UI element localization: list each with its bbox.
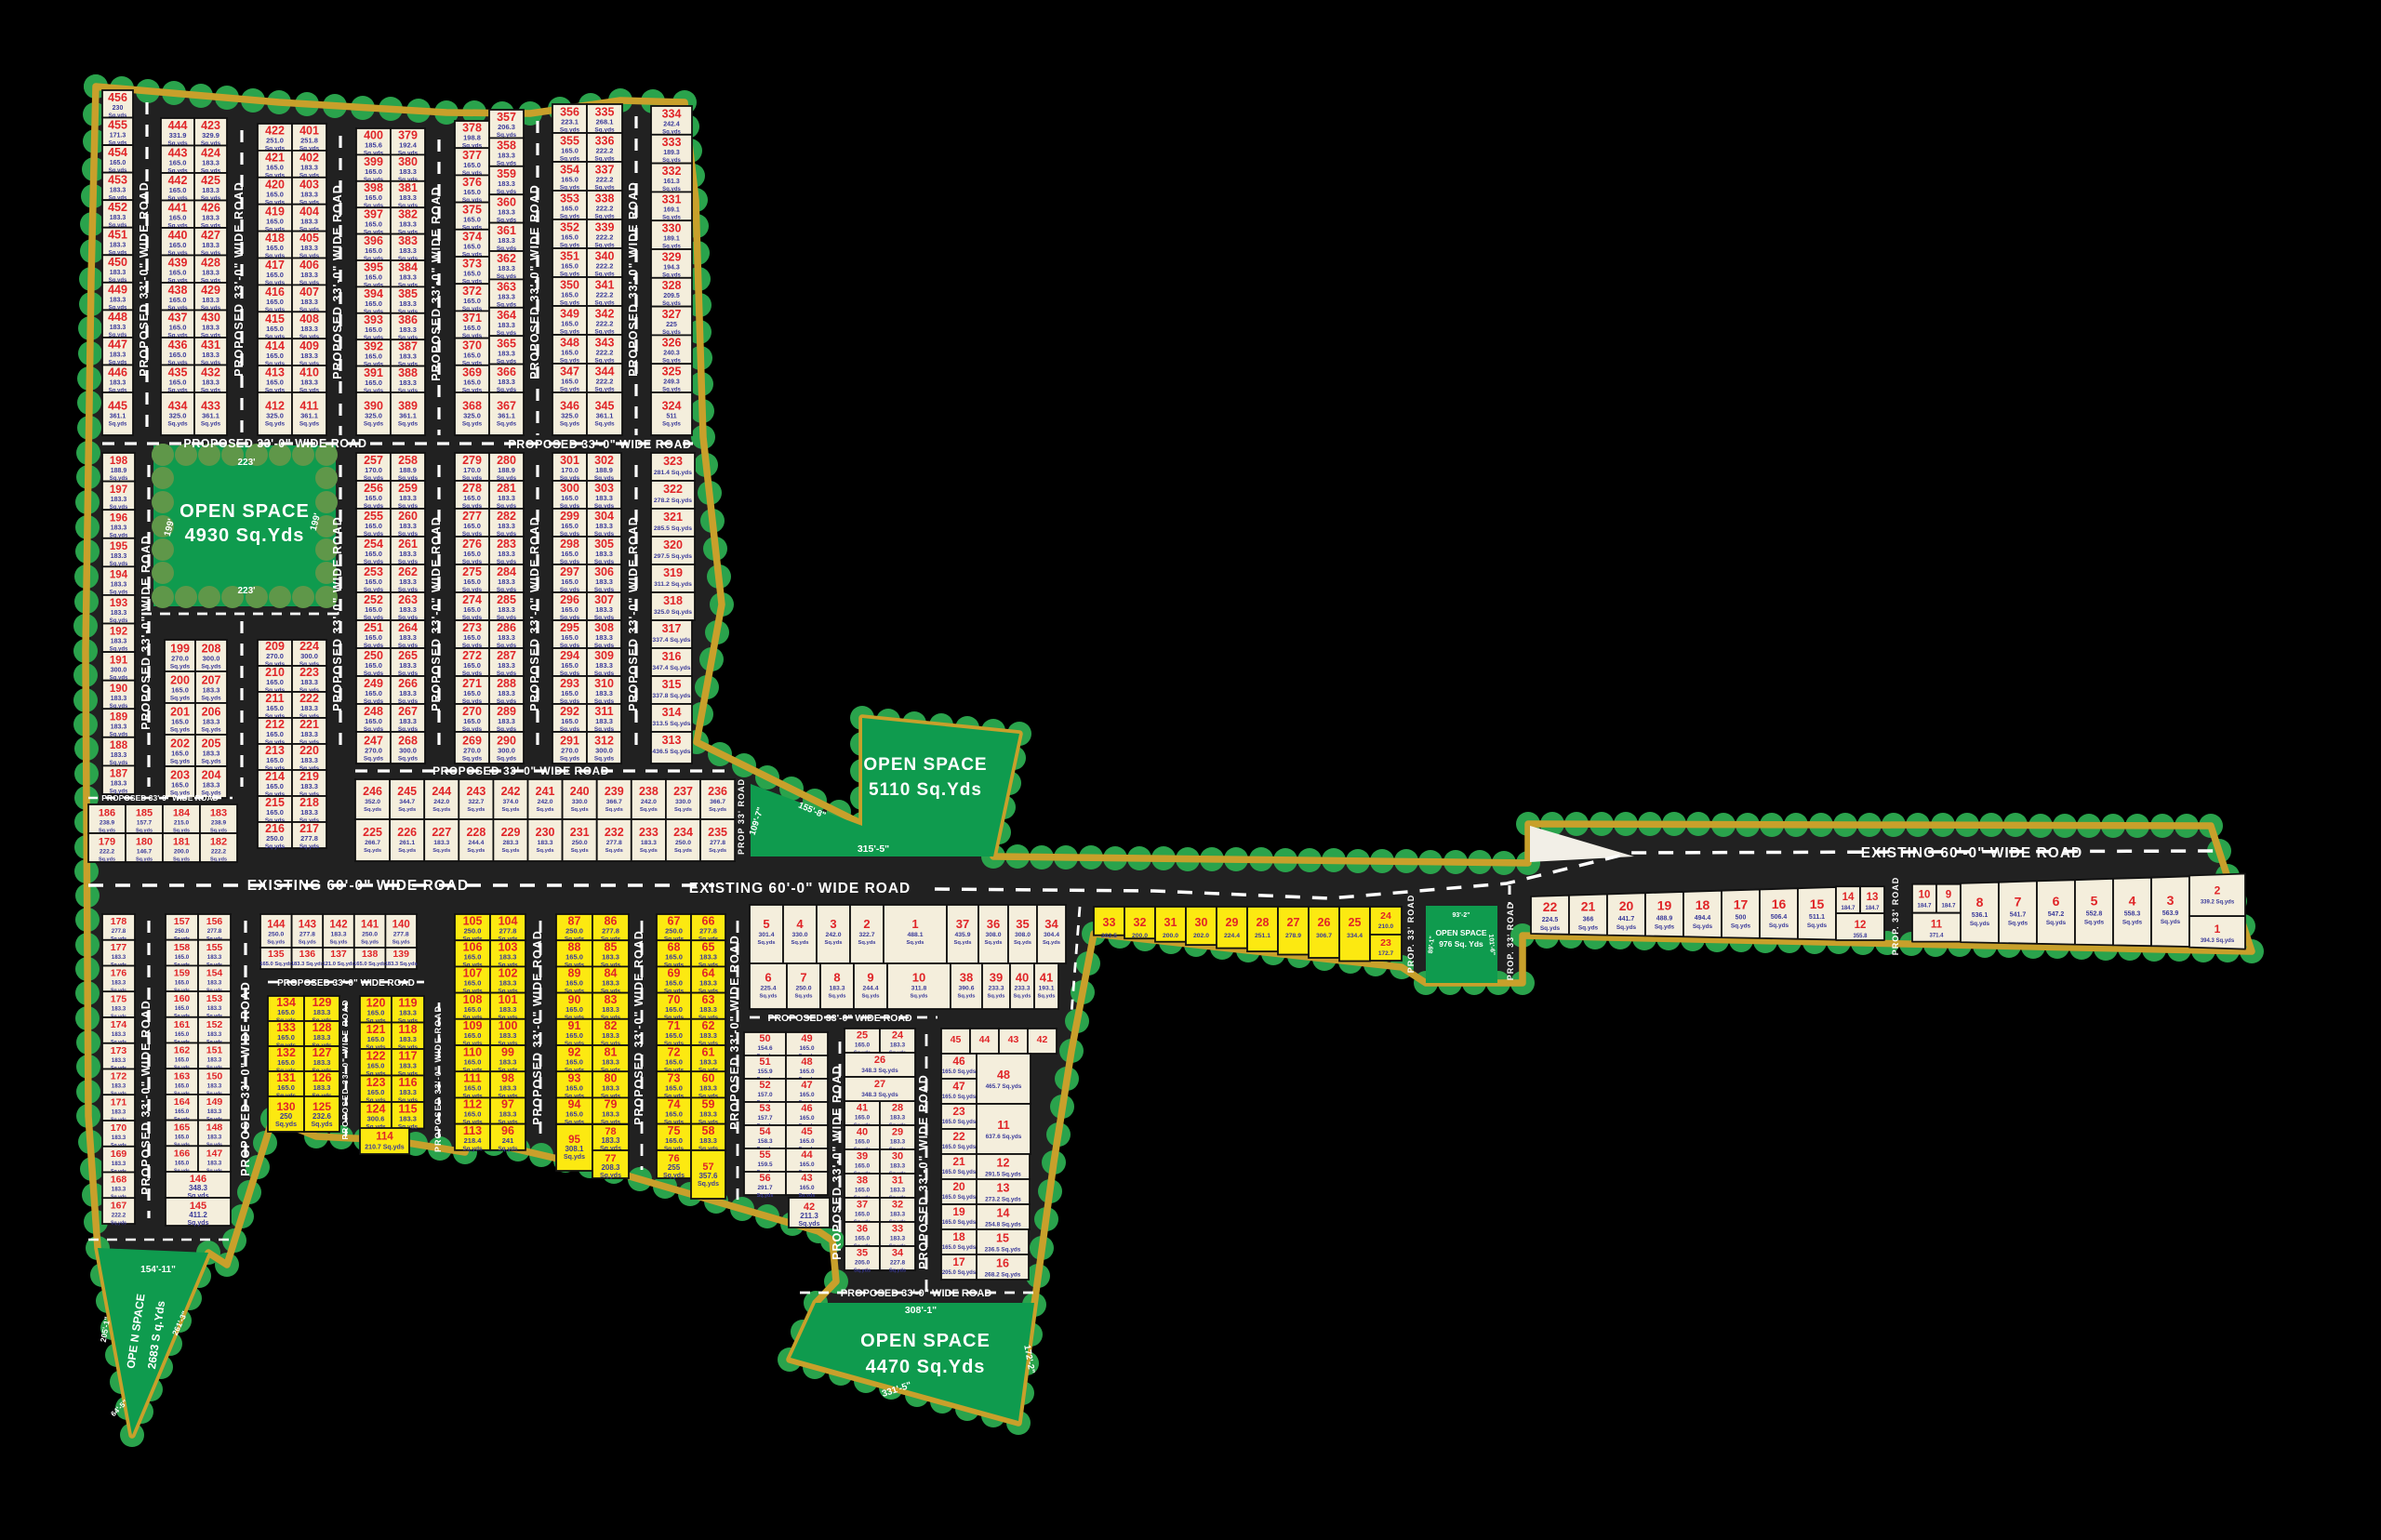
svg-text:322.7: 322.7	[468, 799, 484, 805]
svg-text:37: 37	[956, 917, 969, 931]
svg-text:300: 300	[560, 482, 579, 495]
svg-text:85: 85	[605, 941, 618, 954]
svg-text:434: 434	[168, 399, 188, 412]
svg-text:21: 21	[952, 1155, 965, 1168]
svg-text:183.3: 183.3	[202, 213, 219, 221]
svg-text:101: 101	[499, 993, 518, 1006]
svg-text:200.0: 200.0	[174, 848, 190, 855]
svg-text:OPEN SPACE: OPEN SPACE	[1435, 928, 1486, 937]
svg-text:339.2 Sq.yds: 339.2 Sq.yds	[2201, 900, 2235, 906]
svg-text:74: 74	[668, 1098, 681, 1111]
svg-text:33: 33	[892, 1223, 903, 1234]
svg-text:177: 177	[111, 942, 127, 953]
svg-text:Sq.yds: Sq.yds	[462, 1146, 483, 1152]
svg-text:406: 406	[299, 259, 319, 272]
svg-text:456: 456	[108, 91, 127, 104]
svg-text:88: 88	[568, 941, 581, 954]
svg-text:183.3: 183.3	[399, 661, 417, 670]
svg-text:97: 97	[501, 1098, 514, 1111]
svg-text:165.0: 165.0	[365, 246, 382, 255]
svg-text:165.0: 165.0	[175, 1082, 190, 1089]
svg-text:110: 110	[463, 1045, 482, 1058]
svg-text:265: 265	[398, 649, 418, 662]
svg-text:147: 147	[206, 1148, 223, 1159]
svg-text:547.2: 547.2	[2048, 911, 2065, 918]
svg-text:300.0: 300.0	[595, 747, 613, 755]
svg-text:183.3: 183.3	[203, 686, 220, 695]
svg-text:183.3: 183.3	[595, 689, 613, 697]
svg-text:441: 441	[168, 201, 188, 214]
svg-text:308.0: 308.0	[1015, 932, 1031, 938]
svg-text:PROPOSED 33'-0" WIDE ROAD: PROPOSED 33'-0" WIDE ROAD	[627, 516, 640, 711]
svg-text:290: 290	[497, 735, 516, 748]
svg-text:223': 223'	[237, 458, 255, 468]
svg-text:194.3: 194.3	[663, 264, 680, 271]
svg-text:163: 163	[174, 1070, 191, 1082]
svg-text:Sq.yds: Sq.yds	[2122, 919, 2143, 925]
svg-text:161.3: 161.3	[663, 179, 680, 185]
svg-text:198: 198	[110, 456, 128, 467]
svg-text:Sq.yds: Sq.yds	[889, 1268, 906, 1273]
svg-text:150: 150	[206, 1070, 223, 1082]
svg-text:165.0: 165.0	[855, 1235, 871, 1241]
svg-text:344.7: 344.7	[399, 799, 415, 805]
svg-text:127: 127	[313, 1046, 332, 1059]
svg-text:322.7: 322.7	[858, 932, 874, 938]
svg-text:419: 419	[265, 205, 285, 218]
svg-text:317: 317	[662, 622, 682, 635]
svg-text:449: 449	[108, 284, 127, 297]
svg-text:165.0: 165.0	[665, 1031, 683, 1040]
svg-text:266: 266	[398, 677, 418, 690]
svg-text:Sq.yds: Sq.yds	[364, 756, 384, 763]
svg-text:165.0: 165.0	[665, 953, 683, 962]
svg-text:165.0: 165.0	[463, 661, 481, 670]
svg-text:277.8: 277.8	[710, 840, 725, 846]
svg-text:43: 43	[801, 1173, 812, 1184]
svg-text:183.3: 183.3	[498, 494, 515, 502]
svg-text:91: 91	[568, 1019, 581, 1032]
svg-text:380: 380	[398, 155, 418, 168]
svg-text:PROPOSED 33'-0" WIDE ROAD: PROPOSED 33'-0" WIDE ROAD	[531, 930, 544, 1125]
svg-text:311: 311	[594, 705, 613, 718]
svg-text:165.0: 165.0	[169, 378, 187, 386]
svg-text:162: 162	[174, 1045, 191, 1056]
svg-text:233.3: 233.3	[1014, 986, 1030, 992]
svg-text:165.0: 165.0	[266, 298, 284, 306]
svg-text:Sq.yds: Sq.yds	[136, 856, 153, 862]
svg-text:277.8: 277.8	[393, 931, 409, 937]
svg-text:183.3: 183.3	[110, 352, 126, 359]
svg-text:165.0: 165.0	[463, 297, 481, 305]
svg-text:PROPOSED 33'-0" WIDE ROAD: PROPOSED 33'-0" WIDE ROAD	[138, 181, 151, 377]
svg-text:374: 374	[462, 231, 482, 244]
svg-text:40: 40	[1016, 971, 1029, 985]
svg-text:222.2: 222.2	[596, 261, 614, 270]
svg-text:Sq.yds: Sq.yds	[560, 420, 580, 427]
svg-text:157: 157	[174, 916, 191, 927]
svg-text:PROPOSED 33'-0" WIDE ROAD: PROPOSED 33'-0" WIDE ROAD	[101, 793, 219, 803]
svg-text:178: 178	[111, 916, 127, 927]
svg-text:271: 271	[462, 677, 482, 690]
svg-text:306: 306	[594, 565, 614, 578]
svg-text:PROPOSED 33'-0" WIDE ROAD: PROPOSED 33'-0" WIDE ROAD	[233, 181, 246, 377]
svg-text:325: 325	[662, 365, 682, 378]
svg-text:183.3: 183.3	[330, 931, 346, 937]
svg-text:Sq.yds: Sq.yds	[794, 994, 812, 1000]
svg-text:183.3: 183.3	[300, 164, 318, 172]
svg-text:200: 200	[170, 674, 190, 687]
svg-text:Sq.yds: Sq.yds	[170, 664, 191, 670]
svg-text:190: 190	[110, 684, 127, 695]
svg-text:Sq.yds: Sq.yds	[910, 994, 927, 1000]
svg-text:Sq.yds: Sq.yds	[501, 848, 519, 854]
svg-text:183.3: 183.3	[203, 750, 220, 758]
svg-text:Sq.yds: Sq.yds	[759, 994, 777, 1000]
svg-text:363: 363	[497, 281, 516, 294]
svg-text:277.8: 277.8	[300, 834, 318, 843]
svg-text:PROPOSED 33'-0" WIDE ROAD: PROPOSED 33'-0" WIDE ROAD	[277, 978, 415, 989]
svg-text:183.3: 183.3	[499, 953, 517, 962]
svg-text:285.5 Sq.yds: 285.5 Sq.yds	[654, 525, 692, 532]
svg-text:375: 375	[462, 203, 482, 216]
svg-text:361.1: 361.1	[202, 411, 219, 419]
svg-text:PROP. 33' ROAD: PROP. 33' ROAD	[1891, 877, 1900, 956]
svg-text:351: 351	[560, 249, 579, 262]
svg-text:165.0: 165.0	[365, 522, 382, 530]
svg-text:96: 96	[501, 1124, 514, 1137]
svg-text:Sq.yds: Sq.yds	[361, 939, 379, 945]
svg-text:165.0: 165.0	[463, 215, 481, 223]
svg-text:220: 220	[299, 744, 319, 757]
svg-text:446: 446	[108, 365, 127, 378]
svg-text:246: 246	[363, 785, 382, 798]
svg-text:149: 149	[206, 1096, 223, 1108]
svg-text:407: 407	[299, 285, 319, 299]
svg-text:47: 47	[952, 1080, 965, 1093]
svg-text:169: 169	[111, 1148, 127, 1160]
svg-text:237: 237	[673, 785, 693, 798]
svg-text:165.0: 165.0	[365, 577, 382, 586]
svg-text:15: 15	[1810, 896, 1825, 911]
svg-text:348.3 Sq.yds: 348.3 Sq.yds	[861, 1092, 898, 1098]
svg-text:295: 295	[560, 621, 579, 634]
svg-text:165.0: 165.0	[365, 325, 382, 334]
svg-text:34: 34	[892, 1247, 904, 1258]
svg-text:234: 234	[673, 826, 693, 839]
svg-text:183.3: 183.3	[203, 718, 220, 726]
svg-text:165.0: 165.0	[800, 1115, 815, 1122]
svg-text:183.3: 183.3	[399, 717, 417, 725]
svg-text:250.0: 250.0	[464, 926, 482, 935]
svg-text:183.3: 183.3	[399, 220, 417, 229]
svg-text:Sq.yds: Sq.yds	[1037, 994, 1055, 1000]
svg-text:256: 256	[364, 482, 383, 495]
svg-text:5: 5	[2091, 894, 2098, 909]
svg-text:281: 281	[497, 482, 516, 495]
svg-text:99: 99	[501, 1045, 514, 1058]
svg-text:361.1: 361.1	[596, 411, 614, 419]
svg-text:183.3: 183.3	[202, 378, 219, 386]
svg-text:450: 450	[108, 256, 127, 269]
svg-text:183.3: 183.3	[890, 1042, 906, 1048]
svg-text:OPEN SPACE: OPEN SPACE	[863, 755, 987, 775]
svg-text:105: 105	[463, 914, 483, 927]
svg-text:174: 174	[111, 1019, 127, 1030]
svg-text:308.1: 308.1	[565, 1145, 584, 1153]
svg-text:262: 262	[398, 565, 418, 578]
svg-text:276: 276	[462, 538, 482, 551]
svg-text:Sq.yds: Sq.yds	[640, 807, 658, 813]
svg-text:315: 315	[662, 678, 682, 691]
svg-text:455: 455	[108, 118, 127, 131]
svg-text:225: 225	[363, 826, 382, 839]
svg-text:355: 355	[560, 134, 579, 147]
svg-text:291.5 Sq.yds: 291.5 Sq.yds	[985, 1172, 1021, 1178]
svg-text:5: 5	[763, 917, 769, 931]
svg-text:157.0: 157.0	[758, 1092, 773, 1098]
svg-text:453: 453	[108, 174, 127, 187]
svg-text:5110 Sq.Yds: 5110 Sq.Yds	[869, 780, 982, 800]
svg-text:170.0: 170.0	[365, 466, 382, 474]
svg-text:418: 418	[265, 232, 285, 245]
svg-text:Sq.yds: Sq.yds	[210, 856, 227, 862]
svg-text:183.3: 183.3	[498, 605, 515, 614]
svg-text:158: 158	[174, 942, 191, 953]
svg-text:280: 280	[497, 454, 516, 467]
svg-text:414: 414	[265, 339, 285, 352]
svg-text:165.0: 165.0	[266, 704, 284, 712]
svg-text:355.8: 355.8	[1853, 934, 1868, 939]
svg-text:541.7: 541.7	[2010, 912, 2027, 919]
svg-text:48: 48	[801, 1056, 812, 1068]
svg-text:PROP. 33' ROAD: PROP. 33' ROAD	[1506, 902, 1515, 981]
svg-text:411: 411	[299, 399, 318, 412]
svg-text:PROPOSED 33'-0" WIDE ROAD: PROPOSED 33'-0" WIDE ROAD	[430, 186, 443, 381]
svg-text:366.7: 366.7	[606, 799, 622, 805]
svg-text:183.3: 183.3	[498, 293, 515, 301]
svg-text:366: 366	[1583, 916, 1594, 923]
svg-text:552.8: 552.8	[2086, 911, 2103, 918]
svg-text:417: 417	[265, 259, 285, 272]
svg-text:444: 444	[168, 119, 188, 132]
svg-text:165.0: 165.0	[855, 1162, 871, 1169]
svg-text:422: 422	[265, 125, 285, 138]
svg-text:315'-5": 315'-5"	[858, 843, 889, 855]
svg-text:416: 416	[265, 285, 285, 299]
svg-text:165.0: 165.0	[266, 164, 284, 172]
svg-text:183.3: 183.3	[207, 1109, 222, 1115]
svg-text:369: 369	[462, 366, 482, 379]
svg-text:350: 350	[560, 278, 579, 291]
svg-text:316: 316	[662, 650, 682, 663]
svg-text:183.3: 183.3	[207, 954, 222, 961]
svg-text:284: 284	[497, 565, 516, 578]
svg-text:92: 92	[568, 1045, 581, 1058]
svg-text:183.3: 183.3	[300, 782, 318, 790]
svg-text:139: 139	[392, 949, 409, 960]
svg-text:183.3: 183.3	[890, 1235, 906, 1241]
svg-text:213: 213	[265, 744, 285, 757]
svg-text:Sq.yds: Sq.yds	[467, 848, 485, 854]
svg-text:165.0: 165.0	[463, 243, 481, 251]
svg-text:158.3: 158.3	[758, 1138, 773, 1145]
svg-text:122: 122	[366, 1049, 386, 1062]
svg-text:121.0 Sq.yds: 121.0 Sq.yds	[322, 962, 354, 967]
svg-text:35: 35	[1016, 917, 1029, 931]
svg-text:82: 82	[605, 1019, 618, 1032]
svg-text:87: 87	[568, 914, 581, 927]
svg-text:198.8: 198.8	[463, 134, 481, 142]
svg-text:165.0: 165.0	[175, 954, 190, 961]
svg-text:169.1: 169.1	[663, 207, 680, 214]
svg-text:106: 106	[463, 941, 483, 954]
svg-text:Sq.yds: Sq.yds	[498, 1146, 518, 1152]
svg-text:Sq.yds: Sq.yds	[265, 420, 286, 427]
svg-text:410: 410	[299, 366, 319, 379]
svg-text:277.8: 277.8	[499, 926, 517, 935]
svg-text:183.3: 183.3	[498, 378, 515, 386]
svg-text:172.7: 172.7	[1378, 950, 1394, 957]
svg-text:165.0: 165.0	[561, 204, 579, 212]
svg-text:165.0: 165.0	[561, 319, 579, 327]
svg-text:249: 249	[364, 677, 383, 690]
svg-text:298: 298	[560, 538, 579, 551]
svg-text:165.0: 165.0	[169, 213, 187, 221]
svg-text:165.0: 165.0	[171, 750, 189, 758]
svg-text:93: 93	[568, 1072, 581, 1085]
svg-text:Sq.yds: Sq.yds	[537, 848, 554, 854]
svg-text:183.3: 183.3	[300, 730, 318, 738]
svg-text:394: 394	[364, 287, 383, 300]
svg-text:165.0: 165.0	[175, 1135, 190, 1141]
svg-text:233: 233	[639, 826, 658, 839]
svg-text:183.3: 183.3	[202, 186, 219, 194]
svg-text:14: 14	[1842, 892, 1855, 903]
svg-text:157.7: 157.7	[758, 1115, 773, 1122]
svg-text:23: 23	[1380, 937, 1391, 949]
svg-text:184.7: 184.7	[1865, 906, 1880, 911]
svg-text:287: 287	[497, 649, 516, 662]
svg-text:183.3: 183.3	[112, 1135, 126, 1141]
svg-text:36: 36	[857, 1223, 868, 1234]
svg-text:165.0: 165.0	[800, 1138, 815, 1145]
svg-text:183.3: 183.3	[602, 1005, 619, 1014]
svg-text:250.0: 250.0	[572, 840, 588, 846]
svg-text:218: 218	[299, 796, 319, 809]
svg-text:154'-11": 154'-11"	[140, 1265, 176, 1275]
svg-text:183.3: 183.3	[313, 1008, 331, 1016]
svg-text:Sq.yds: Sq.yds	[501, 807, 519, 813]
svg-text:165.0: 165.0	[463, 270, 481, 278]
svg-text:320: 320	[663, 538, 683, 551]
svg-text:165.0 Sq.yds: 165.0 Sq.yds	[942, 1095, 977, 1100]
svg-text:27: 27	[874, 1079, 885, 1090]
svg-text:Sq.yds: Sq.yds	[329, 939, 347, 945]
svg-text:208.3: 208.3	[601, 1163, 620, 1172]
svg-text:184.7: 184.7	[1941, 904, 1956, 909]
svg-text:182: 182	[210, 836, 227, 847]
svg-text:165.0: 165.0	[266, 378, 284, 387]
svg-text:249.3: 249.3	[663, 379, 680, 386]
svg-text:183.3: 183.3	[110, 298, 126, 304]
svg-text:170.0: 170.0	[463, 466, 481, 474]
svg-text:Sq.yds: Sq.yds	[173, 856, 190, 862]
svg-text:185: 185	[136, 807, 153, 818]
svg-text:165.0: 165.0	[365, 661, 382, 670]
svg-text:94: 94	[568, 1098, 581, 1111]
svg-text:183.3: 183.3	[699, 953, 717, 962]
svg-text:Sq.yds: Sq.yds	[824, 940, 842, 946]
svg-text:107: 107	[463, 967, 483, 980]
svg-text:Sq.yds: Sq.yds	[799, 1221, 820, 1228]
svg-text:183.3: 183.3	[595, 550, 613, 558]
svg-text:72: 72	[668, 1045, 681, 1058]
svg-text:399: 399	[364, 155, 383, 168]
svg-text:183.3: 183.3	[399, 1035, 417, 1043]
svg-text:81: 81	[605, 1045, 618, 1058]
svg-text:431: 431	[201, 339, 220, 352]
svg-text:165.0: 165.0	[463, 378, 481, 387]
svg-text:Sq.yds: Sq.yds	[1731, 923, 1751, 930]
svg-text:254.8 Sq.yds: 254.8 Sq.yds	[985, 1222, 1021, 1228]
svg-text:183.3: 183.3	[207, 1082, 222, 1089]
svg-text:183.3: 183.3	[207, 1005, 222, 1012]
svg-text:183.3: 183.3	[399, 494, 417, 502]
svg-text:328: 328	[662, 279, 682, 292]
svg-text:165.0: 165.0	[561, 661, 579, 670]
svg-text:183.3: 183.3	[112, 1083, 126, 1090]
svg-text:165.0: 165.0	[463, 605, 481, 614]
svg-text:183.3: 183.3	[399, 1008, 417, 1016]
svg-text:PROPOSED 33'-0" WIDE ROAD: PROPOSED 33'-0" WIDE ROAD	[331, 516, 344, 711]
svg-text:183.3: 183.3	[111, 553, 127, 560]
svg-text:PROPOSED 33'-0" WIDE ROAD: PROPOSED 33'-0" WIDE ROAD	[140, 1000, 153, 1195]
svg-text:129: 129	[313, 996, 332, 1009]
svg-text:330: 330	[662, 222, 682, 235]
svg-text:319: 319	[663, 566, 683, 579]
svg-text:183.3: 183.3	[595, 577, 613, 586]
svg-text:165.0: 165.0	[266, 678, 284, 686]
svg-text:165.0: 165.0	[463, 494, 481, 502]
svg-text:183.3: 183.3	[829, 986, 845, 992]
svg-text:165.0: 165.0	[266, 352, 284, 360]
svg-text:181: 181	[173, 836, 190, 847]
svg-text:Sq.yds: Sq.yds	[201, 420, 221, 427]
svg-text:390: 390	[364, 399, 383, 412]
svg-text:346: 346	[560, 399, 579, 412]
svg-text:183.3: 183.3	[111, 610, 127, 617]
svg-text:14: 14	[997, 1207, 1010, 1220]
svg-text:79: 79	[605, 1098, 618, 1111]
svg-text:183.3: 183.3	[111, 752, 127, 759]
svg-text:Sq.yds: Sq.yds	[275, 1122, 297, 1128]
svg-text:165.0: 165.0	[266, 190, 284, 198]
svg-text:41: 41	[857, 1102, 868, 1113]
svg-text:289: 289	[497, 705, 516, 718]
svg-text:314: 314	[662, 706, 682, 719]
svg-text:336: 336	[595, 134, 615, 147]
svg-text:272: 272	[462, 649, 482, 662]
svg-text:Sq.yds: Sq.yds	[987, 994, 1004, 1000]
svg-text:308'-1": 308'-1"	[905, 1305, 937, 1316]
svg-text:183.3: 183.3	[499, 979, 517, 988]
svg-text:61: 61	[702, 1045, 715, 1058]
svg-text:242: 242	[501, 785, 521, 798]
svg-text:183.3: 183.3	[595, 605, 613, 614]
svg-text:223: 223	[299, 666, 319, 679]
svg-text:310: 310	[594, 677, 614, 690]
